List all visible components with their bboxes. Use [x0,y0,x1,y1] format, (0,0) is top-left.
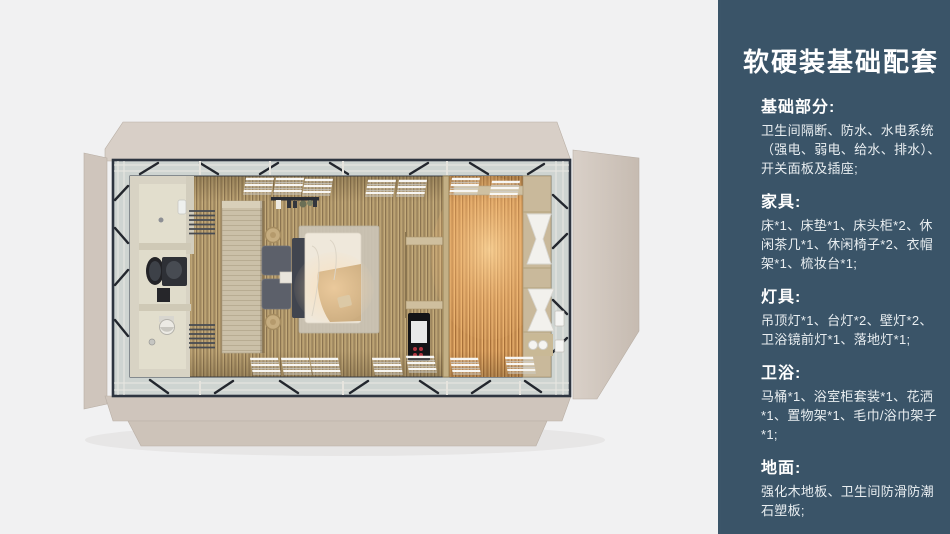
flap-left [84,153,107,409]
rolled-towel [529,341,538,350]
flap-top [105,122,571,161]
pillow [262,279,291,309]
wardrobe [222,201,265,353]
flap-bottom [105,396,571,421]
sidebar-sections: 基础部分: 卫生间隔断、防水、水电系统（强电、弱电、给水、排水）、开关面板及插座… [761,97,943,520]
flap-bottom-outer [128,421,547,446]
section-basics-body: 卫生间隔断、防水、水电系统（强电、弱电、给水、排水）、开关面板及插座; [761,121,943,178]
section-lighting: 灯具: 吊顶灯*1、台灯*2、壁灯*2、卫浴镜前灯*1、落地灯*1; [761,287,943,349]
switch-panel [555,340,564,352]
shower-head [178,200,186,214]
section-basics-title: 基础部分: [761,97,943,118]
rolled-towel [539,341,548,350]
divider-wall [443,176,449,377]
shower-drain [159,218,164,223]
section-furniture: 家具: 床*1、床垫*1、床头柜*2、休闲茶几*1、休闲椅子*2、衣帽架*1、梳… [761,192,943,273]
bedside-lamp-glow [294,252,374,324]
sink-basin [166,261,182,279]
section-flooring: 地面: 强化木地板、卫生间防滑防潮石塑板; [761,458,943,520]
sidebar-title: 软硬装基础配套 [743,46,938,78]
section-lighting-body: 吊顶灯*1、台灯*2、壁灯*2、卫浴镜前灯*1、落地灯*1; [761,311,943,349]
floorplan-render-area [0,0,718,534]
room-interior [130,176,564,377]
pillow [262,246,291,275]
wall-shelf [406,237,443,245]
slide: 软硬装基础配套 基础部分: 卫生间隔断、防水、水电系统（强电、弱电、给水、排水）… [0,0,950,534]
package-sidebar: 软硬装基础配套 基础部分: 卫生间隔断、防水、水电系统（强电、弱电、给水、排水）… [718,0,950,534]
section-furniture-body: 床*1、床垫*1、床头柜*2、休闲茶几*1、休闲椅子*2、衣帽架*1、梳妆台*1… [761,216,943,273]
vanity-stool [157,288,170,302]
section-flooring-body: 强化木地板、卫生间防滑防潮石塑板; [761,482,943,520]
plant [300,201,307,208]
section-basics: 基础部分: 卫生间隔断、防水、水电系统（强电、弱电、给水、排水）、开关面板及插座… [761,97,943,178]
bathroom [130,176,194,377]
bathroom-shelf [139,304,191,311]
section-flooring-title: 地面: [761,458,943,479]
plant [307,200,313,206]
headboard-tray [280,272,292,283]
section-sanitary: 卫浴: 马桶*1、浴室柜套装*1、花洒*1、置物架*1、毛巾/浴巾架子*1; [761,363,943,444]
floorplan-render [0,0,718,534]
wall-shelf [406,301,443,309]
floor-drain [149,339,155,345]
bathroom-shelf [139,243,191,250]
section-sanitary-title: 卫浴: [761,363,943,384]
section-sanitary-body: 马桶*1、浴室柜套装*1、花洒*1、置物架*1、毛巾/浴巾架子*1; [761,387,943,444]
switch-panel [555,311,564,326]
section-furniture-title: 家具: [761,192,943,213]
section-lighting-title: 灯具: [761,287,943,308]
